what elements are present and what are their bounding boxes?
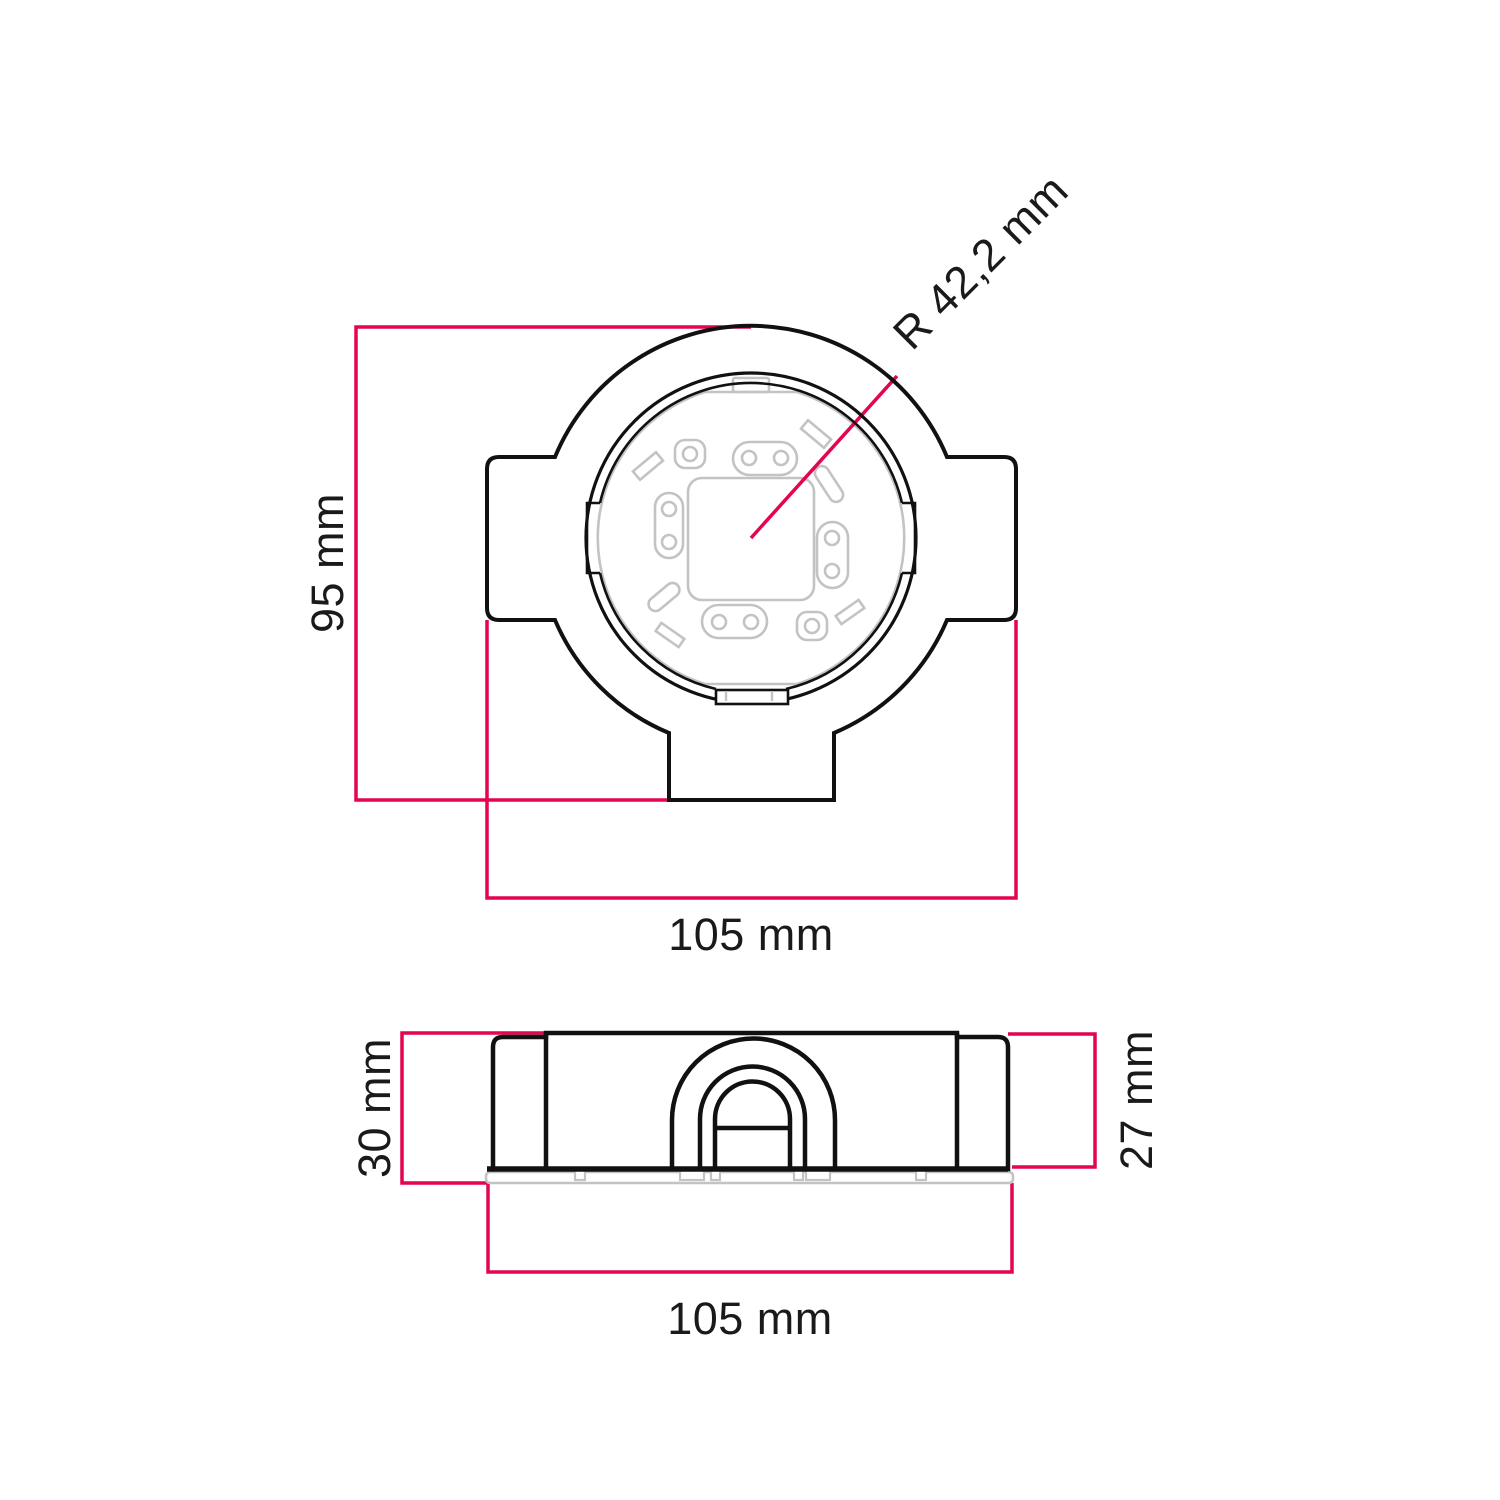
dim-height-27-line (1008, 1034, 1095, 1167)
dim-width-105-label: 105 mm (668, 909, 834, 960)
technical-drawing-page: 95 mm 105 mm R 42,2 mm (0, 0, 1500, 1500)
top-view: 95 mm 105 mm R 42,2 mm (302, 164, 1078, 960)
top-view-body-fill (487, 326, 1016, 800)
side-body-fill (493, 1033, 1008, 1169)
dim-side-width-105-line (488, 1183, 1012, 1272)
base-plate-strip (486, 1172, 1013, 1183)
dim-side-width-105-label: 105 mm (667, 1293, 833, 1344)
dim-radius-label: R 42,2 mm (883, 164, 1078, 359)
dim-height-30-label: 30 mm (349, 1038, 400, 1178)
dim-height-27-label: 27 mm (1111, 1030, 1162, 1170)
ceiling-box-dimension-drawing: 95 mm 105 mm R 42,2 mm (0, 0, 1500, 1500)
bottom-cable-connector (716, 690, 788, 704)
dim-height-95-label: 95 mm (302, 493, 353, 633)
side-view: 30 mm 27 mm 105 mm (349, 1030, 1162, 1344)
